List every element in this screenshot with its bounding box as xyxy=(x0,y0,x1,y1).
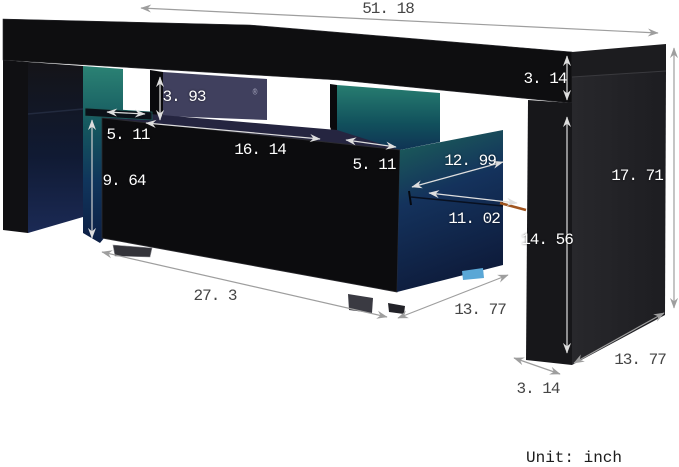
dim-label-cabinet-side-diagonal: 12. 99 xyxy=(444,153,496,169)
left-side-panel xyxy=(3,60,28,233)
product-dimension-diagram: 51. 18 3. 14 3. 93 5. 11 16. 14 5. 11 12… xyxy=(0,0,679,467)
dim-label-right-opening-width: 5. 11 xyxy=(352,157,395,173)
dim-label-panel-thickness: 3. 14 xyxy=(516,381,559,397)
dim-label-drawer-width: 11. 02 xyxy=(448,211,500,227)
tv-stand-illustration xyxy=(0,0,679,467)
led-wire-orange xyxy=(500,203,526,210)
registered-trademark-mark: ® xyxy=(253,89,258,98)
dim-label-top-length: 51. 18 xyxy=(362,1,414,17)
cabinet-foot-front-right xyxy=(348,294,373,313)
shelf-divider-left xyxy=(150,70,163,118)
dim-label-shelf-opening-height: 3. 93 xyxy=(162,89,205,105)
dim-label-cabinet-height: 9. 64 xyxy=(102,173,145,189)
dim-label-left-shelf-depth: 5. 11 xyxy=(106,127,149,143)
unit-note: Unit: inch xyxy=(526,449,622,467)
cabinet-foot-front-left xyxy=(113,245,152,257)
dim-label-top-thickness: 3. 14 xyxy=(523,71,566,87)
dim-label-panel-depth: 13. 77 xyxy=(614,352,666,368)
dim-label-cabinet-width: 27. 3 xyxy=(193,288,236,304)
left-panel-inner-face xyxy=(28,62,83,233)
dim-label-overall-height: 17. 71 xyxy=(611,168,663,184)
right-panel-side-face xyxy=(572,71,666,365)
dim-label-middle-opening-width: 16. 14 xyxy=(234,142,286,158)
cabinet-foot-back xyxy=(388,303,405,314)
dim-label-cabinet-depth: 13. 77 xyxy=(454,302,506,318)
dim-label-side-inner-height: 14. 56 xyxy=(521,232,573,248)
